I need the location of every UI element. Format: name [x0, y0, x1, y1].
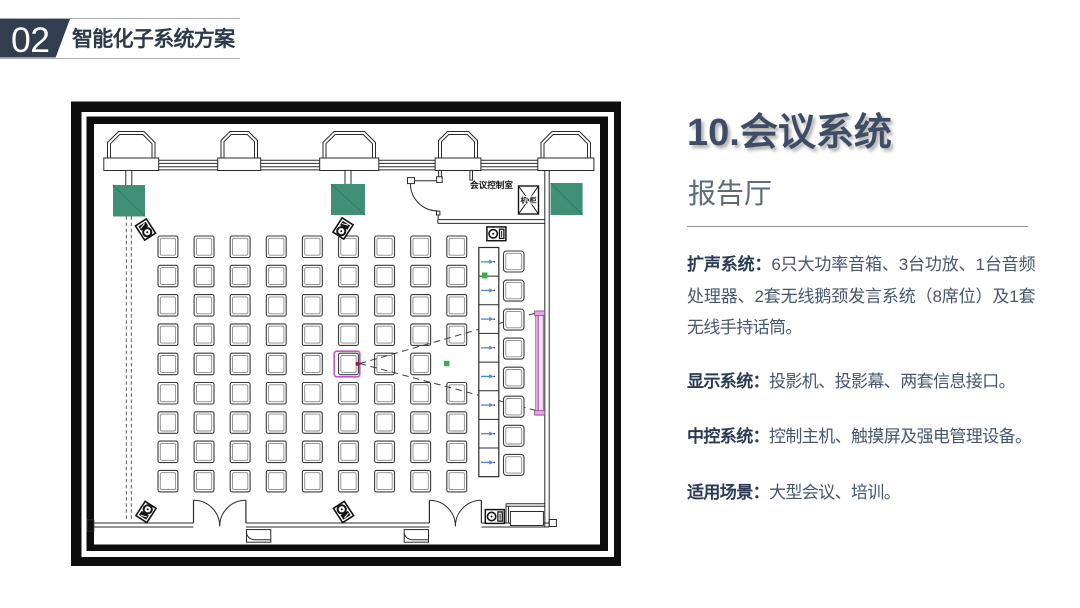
svg-text:会议控制室: 会议控制室 [470, 179, 513, 190]
svg-text:机 柜: 机 柜 [521, 196, 537, 205]
